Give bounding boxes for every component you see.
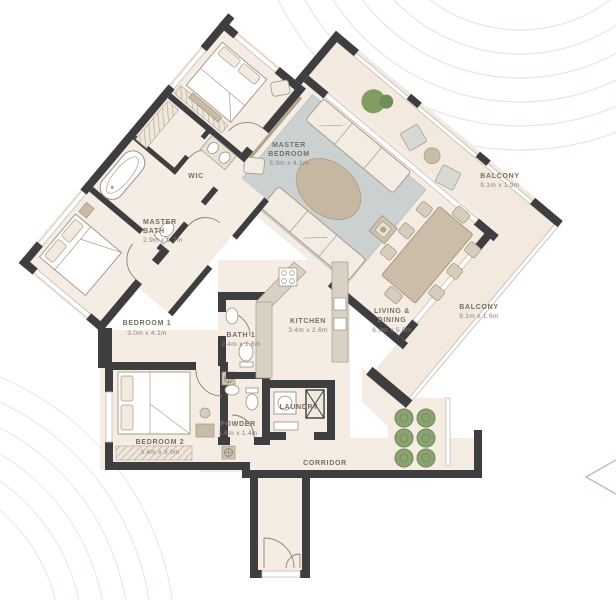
bath1-sink: [226, 308, 238, 324]
bedroom2-window: [106, 392, 112, 442]
powder-sink: [225, 385, 239, 395]
label-living-dining: DINING: [378, 317, 407, 324]
label-living-dining: LIVING &: [374, 308, 410, 315]
dims-bedroom1: 3.0m x 4.1m: [127, 330, 167, 337]
label-powder: POWDER: [220, 421, 256, 428]
dims-master-bath: 2.9m x 2.7m: [143, 237, 183, 244]
kitchen-appliance: [334, 318, 346, 330]
laundry-shelf: [274, 422, 298, 430]
dims-kitchen: 3.4m x 2.6m: [288, 327, 328, 334]
label-laundry: LAUNDRY: [280, 404, 319, 411]
label-balcony-right: BALCONY: [459, 304, 499, 311]
label-master-bath: MASTER: [143, 219, 177, 226]
label-balcony-top: BALCONY: [480, 173, 520, 180]
label-bath1: BATH 1: [227, 332, 256, 339]
label-master-bath: BATH: [143, 228, 165, 235]
label-corridor: CORRIDOR: [303, 460, 347, 467]
bedroom2-bed: [118, 372, 190, 434]
dims-powder: 1.6m x 1.4m: [218, 430, 258, 437]
bedroom2-stool: [200, 408, 210, 418]
dims-balcony-top: 9.1m x 1.9m: [480, 182, 520, 189]
floor-plan: MASTER BEDROOM 3.9m x 4.1m WIC MASTER BA…: [0, 0, 616, 600]
niche-glazing: [446, 398, 450, 466]
chevron-decor-icon: [586, 460, 616, 494]
dims-bedroom2: 3.4m x 3.0m: [140, 449, 180, 456]
dims-balcony-right: 9.1m x 1.6m: [459, 313, 499, 320]
bedroom2-desk: [196, 424, 214, 437]
dims-living-dining: 6.9m x 5.0m: [372, 327, 412, 334]
column-marker: [222, 446, 235, 459]
armchair: [270, 80, 290, 97]
dims-bath1: 2.4m x 1.6m: [221, 341, 261, 348]
dims-master-bedroom: 3.9m x 4.1m: [269, 160, 309, 167]
label-wic: WIC: [188, 173, 204, 180]
kitchen-sink: [334, 298, 346, 310]
label-master-bedroom: MASTER: [272, 142, 306, 149]
powder-toilet: [246, 388, 258, 410]
label-kitchen: KITCHEN: [290, 318, 326, 325]
label-bedroom2: BEDROOM 2: [136, 439, 185, 446]
label-bedroom1: BEDROOM 1: [123, 320, 172, 327]
cooktop: [279, 268, 297, 286]
label-master-bedroom: BEDROOM: [268, 151, 309, 158]
armchair: [243, 157, 264, 175]
entry-threshold: [262, 571, 300, 577]
